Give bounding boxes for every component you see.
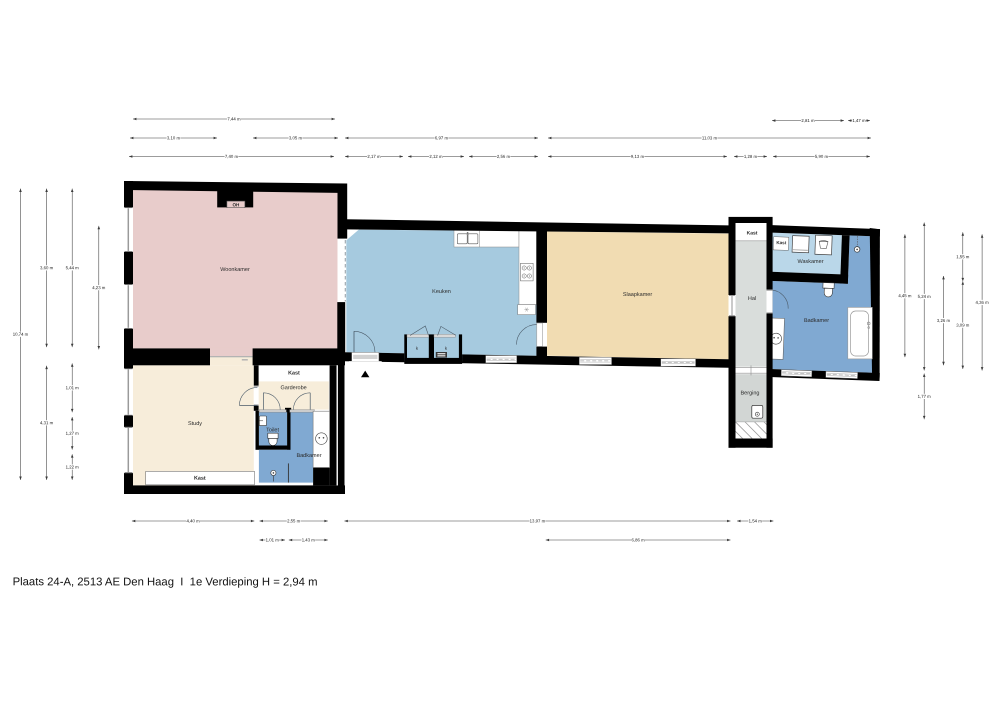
svg-text:5,24 m: 5,24 m xyxy=(918,294,932,299)
svg-text:1,43 m: 1,43 m xyxy=(302,537,316,542)
svg-text:6,86 m: 6,86 m xyxy=(632,537,646,542)
svg-text:Kast: Kast xyxy=(776,240,786,245)
svg-text:1,77 m: 1,77 m xyxy=(918,394,932,399)
svg-text:Kast: Kast xyxy=(194,476,206,482)
svg-text:Toilet: Toilet xyxy=(266,427,279,433)
svg-text:3,05 m: 3,05 m xyxy=(289,135,303,140)
svg-text:Garderobe: Garderobe xyxy=(280,385,306,391)
svg-text:Woonkamer: Woonkamer xyxy=(220,267,250,273)
svg-text:1,28 m: 1,28 m xyxy=(744,154,758,159)
svg-text:4,36 m: 4,36 m xyxy=(976,300,990,305)
svg-text:4,40 m: 4,40 m xyxy=(187,518,201,523)
svg-text:Slaapkamer: Slaapkamer xyxy=(623,292,653,298)
svg-text:5,90 m: 5,90 m xyxy=(815,154,829,159)
svg-text:Waskamer: Waskamer xyxy=(797,259,823,265)
svg-text:Berging: Berging xyxy=(741,390,760,396)
svg-text:7,44 m: 7,44 m xyxy=(227,116,241,121)
svg-text:6,97 m: 6,97 m xyxy=(435,135,449,140)
svg-text:9,13 m: 9,13 m xyxy=(631,154,645,159)
svg-text:13,97 m: 13,97 m xyxy=(530,518,546,523)
svg-text:2,81 m: 2,81 m xyxy=(801,118,815,123)
svg-text:2,17 m: 2,17 m xyxy=(367,154,381,159)
svg-text:4,23 m: 4,23 m xyxy=(92,285,106,290)
svg-text:Kast: Kast xyxy=(747,230,758,236)
svg-text:1,01 m: 1,01 m xyxy=(266,537,280,542)
svg-text:2,12 m: 2,12 m xyxy=(429,154,443,159)
svg-text:1,55 m: 1,55 m xyxy=(956,254,970,259)
svg-text:4,31 m: 4,31 m xyxy=(40,420,54,425)
svg-text:3,26 m: 3,26 m xyxy=(937,318,951,323)
svg-text:Study: Study xyxy=(188,421,202,427)
svg-text:7,40 m: 7,40 m xyxy=(225,154,239,159)
svg-text:4,45 m: 4,45 m xyxy=(898,293,912,298)
svg-text:10,74 m: 10,74 m xyxy=(13,332,29,337)
svg-text:1,27 m: 1,27 m xyxy=(66,431,80,436)
svg-text:3,10 m: 3,10 m xyxy=(167,135,181,140)
svg-text:OH: OH xyxy=(232,202,240,207)
svg-text:5,44 m: 5,44 m xyxy=(66,265,80,270)
svg-text:3,09 m: 3,09 m xyxy=(956,323,970,328)
svg-text:Hal: Hal xyxy=(748,296,756,302)
svg-text:Badkamer: Badkamer xyxy=(804,318,829,324)
svg-text:Plaats 24-A, 2513 AE Den Haag: Plaats 24-A, 2513 AE Den Haag I 1e Verdi… xyxy=(13,576,318,588)
svg-text:Kast: Kast xyxy=(288,370,300,376)
svg-text:1,47 m: 1,47 m xyxy=(852,118,866,123)
svg-text:3,60 m: 3,60 m xyxy=(40,265,54,270)
svg-text:1,22 m: 1,22 m xyxy=(66,464,80,469)
svg-text:11,03 m: 11,03 m xyxy=(702,135,718,140)
svg-text:2,55 m: 2,55 m xyxy=(287,518,301,523)
svg-text:Badkamer: Badkamer xyxy=(296,453,321,459)
svg-text:1,54 m: 1,54 m xyxy=(749,518,763,523)
svg-text:1,01 m: 1,01 m xyxy=(66,385,80,390)
svg-text:Keuken: Keuken xyxy=(432,289,451,295)
svg-text:2,56 m: 2,56 m xyxy=(497,154,511,159)
